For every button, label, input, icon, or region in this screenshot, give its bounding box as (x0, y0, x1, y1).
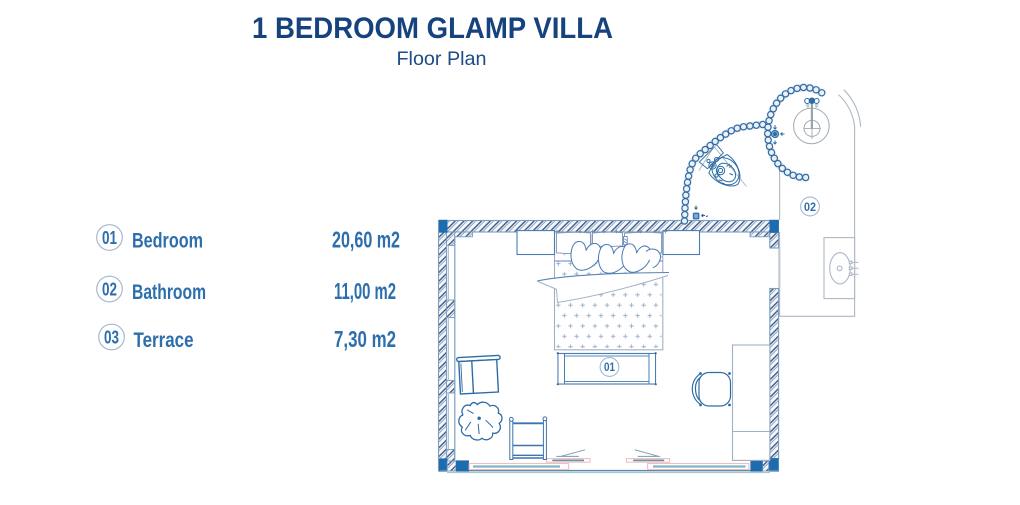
svg-text:02: 02 (804, 200, 816, 214)
svg-text:Floor Plan: Floor Plan (397, 48, 487, 70)
svg-text:Bathroom: Bathroom (132, 280, 206, 304)
svg-text:20,60 m2: 20,60 m2 (332, 227, 400, 253)
svg-text:7,30 m2: 7,30 m2 (334, 326, 396, 352)
svg-text:Terrace: Terrace (134, 328, 194, 352)
svg-text:03: 03 (104, 327, 119, 348)
svg-text:01: 01 (604, 362, 616, 374)
svg-text:11,00 m2: 11,00 m2 (334, 278, 396, 304)
svg-text:1 BEDROOM GLAMP VILLA: 1 BEDROOM GLAMP VILLA (252, 12, 613, 45)
svg-text:02: 02 (102, 279, 117, 300)
svg-text:Bedroom: Bedroom (132, 229, 203, 253)
svg-text:01: 01 (102, 227, 117, 248)
